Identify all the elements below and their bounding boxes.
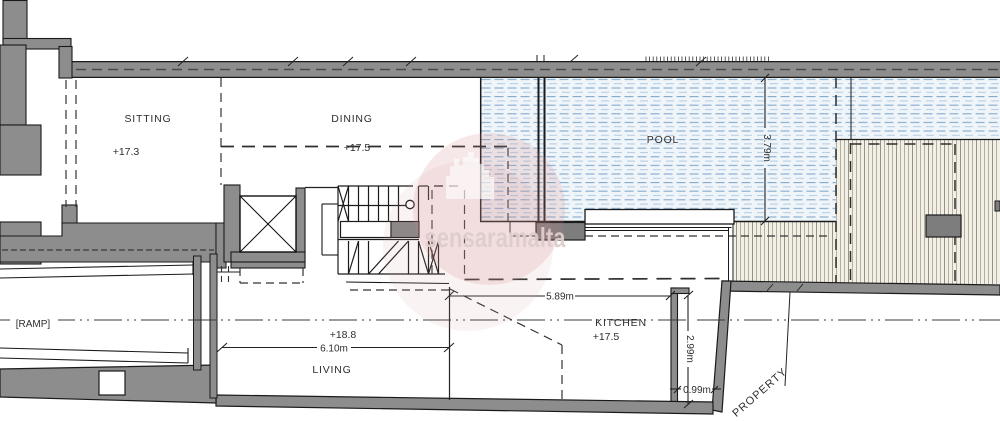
svg-text:+17.3: +17.3	[113, 146, 140, 158]
svg-text:+17.5: +17.5	[593, 331, 620, 343]
svg-text:5.89m: 5.89m	[546, 292, 574, 303]
svg-text:DINING: DINING	[331, 113, 373, 125]
svg-text:sensaramalta: sensaramalta	[425, 222, 566, 253]
svg-text:[RAMP]: [RAMP]	[16, 319, 51, 330]
svg-text:0.99m: 0.99m	[683, 385, 711, 396]
svg-text:6.10m: 6.10m	[320, 344, 348, 355]
svg-text:POOL: POOL	[647, 134, 679, 146]
svg-text:LIVING: LIVING	[312, 364, 351, 376]
svg-text:3.79m: 3.79m	[761, 134, 772, 162]
svg-text:SITTING: SITTING	[124, 113, 171, 125]
svg-text:2.99m: 2.99m	[684, 335, 695, 363]
svg-text:+17.5: +17.5	[344, 142, 371, 154]
svg-text:KITCHEN: KITCHEN	[595, 317, 647, 329]
svg-text:+18.8: +18.8	[330, 329, 357, 341]
